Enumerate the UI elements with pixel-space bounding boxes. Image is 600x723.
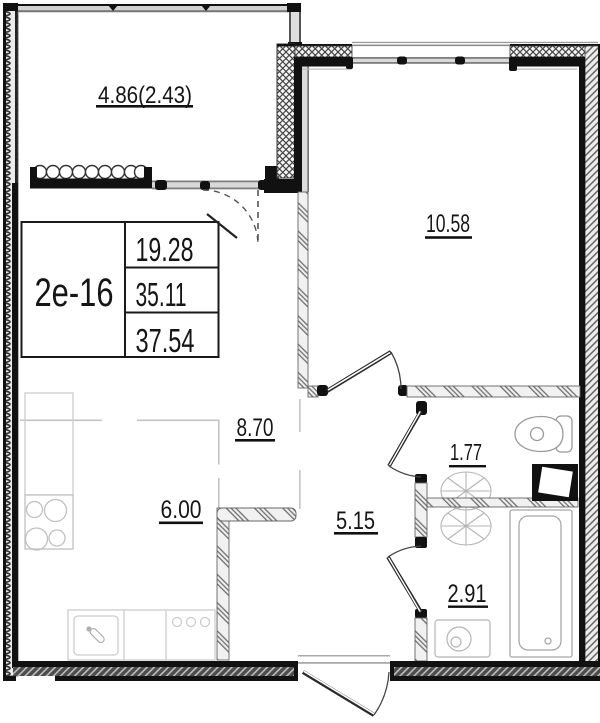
svg-text:4.86(2.43): 4.86(2.43)	[98, 82, 192, 109]
svg-text:2е-16: 2е-16	[35, 271, 114, 315]
svg-text:10.58: 10.58	[426, 210, 470, 238]
svg-text:5.15: 5.15	[336, 507, 375, 535]
svg-text:8.70: 8.70	[237, 414, 274, 442]
svg-text:2.91: 2.91	[448, 580, 487, 608]
svg-text:35.11: 35.11	[136, 276, 187, 313]
svg-text:19.28: 19.28	[136, 231, 194, 268]
svg-text:6.00: 6.00	[161, 496, 202, 524]
svg-text:37.54: 37.54	[136, 322, 195, 359]
svg-text:1.77: 1.77	[450, 439, 482, 465]
